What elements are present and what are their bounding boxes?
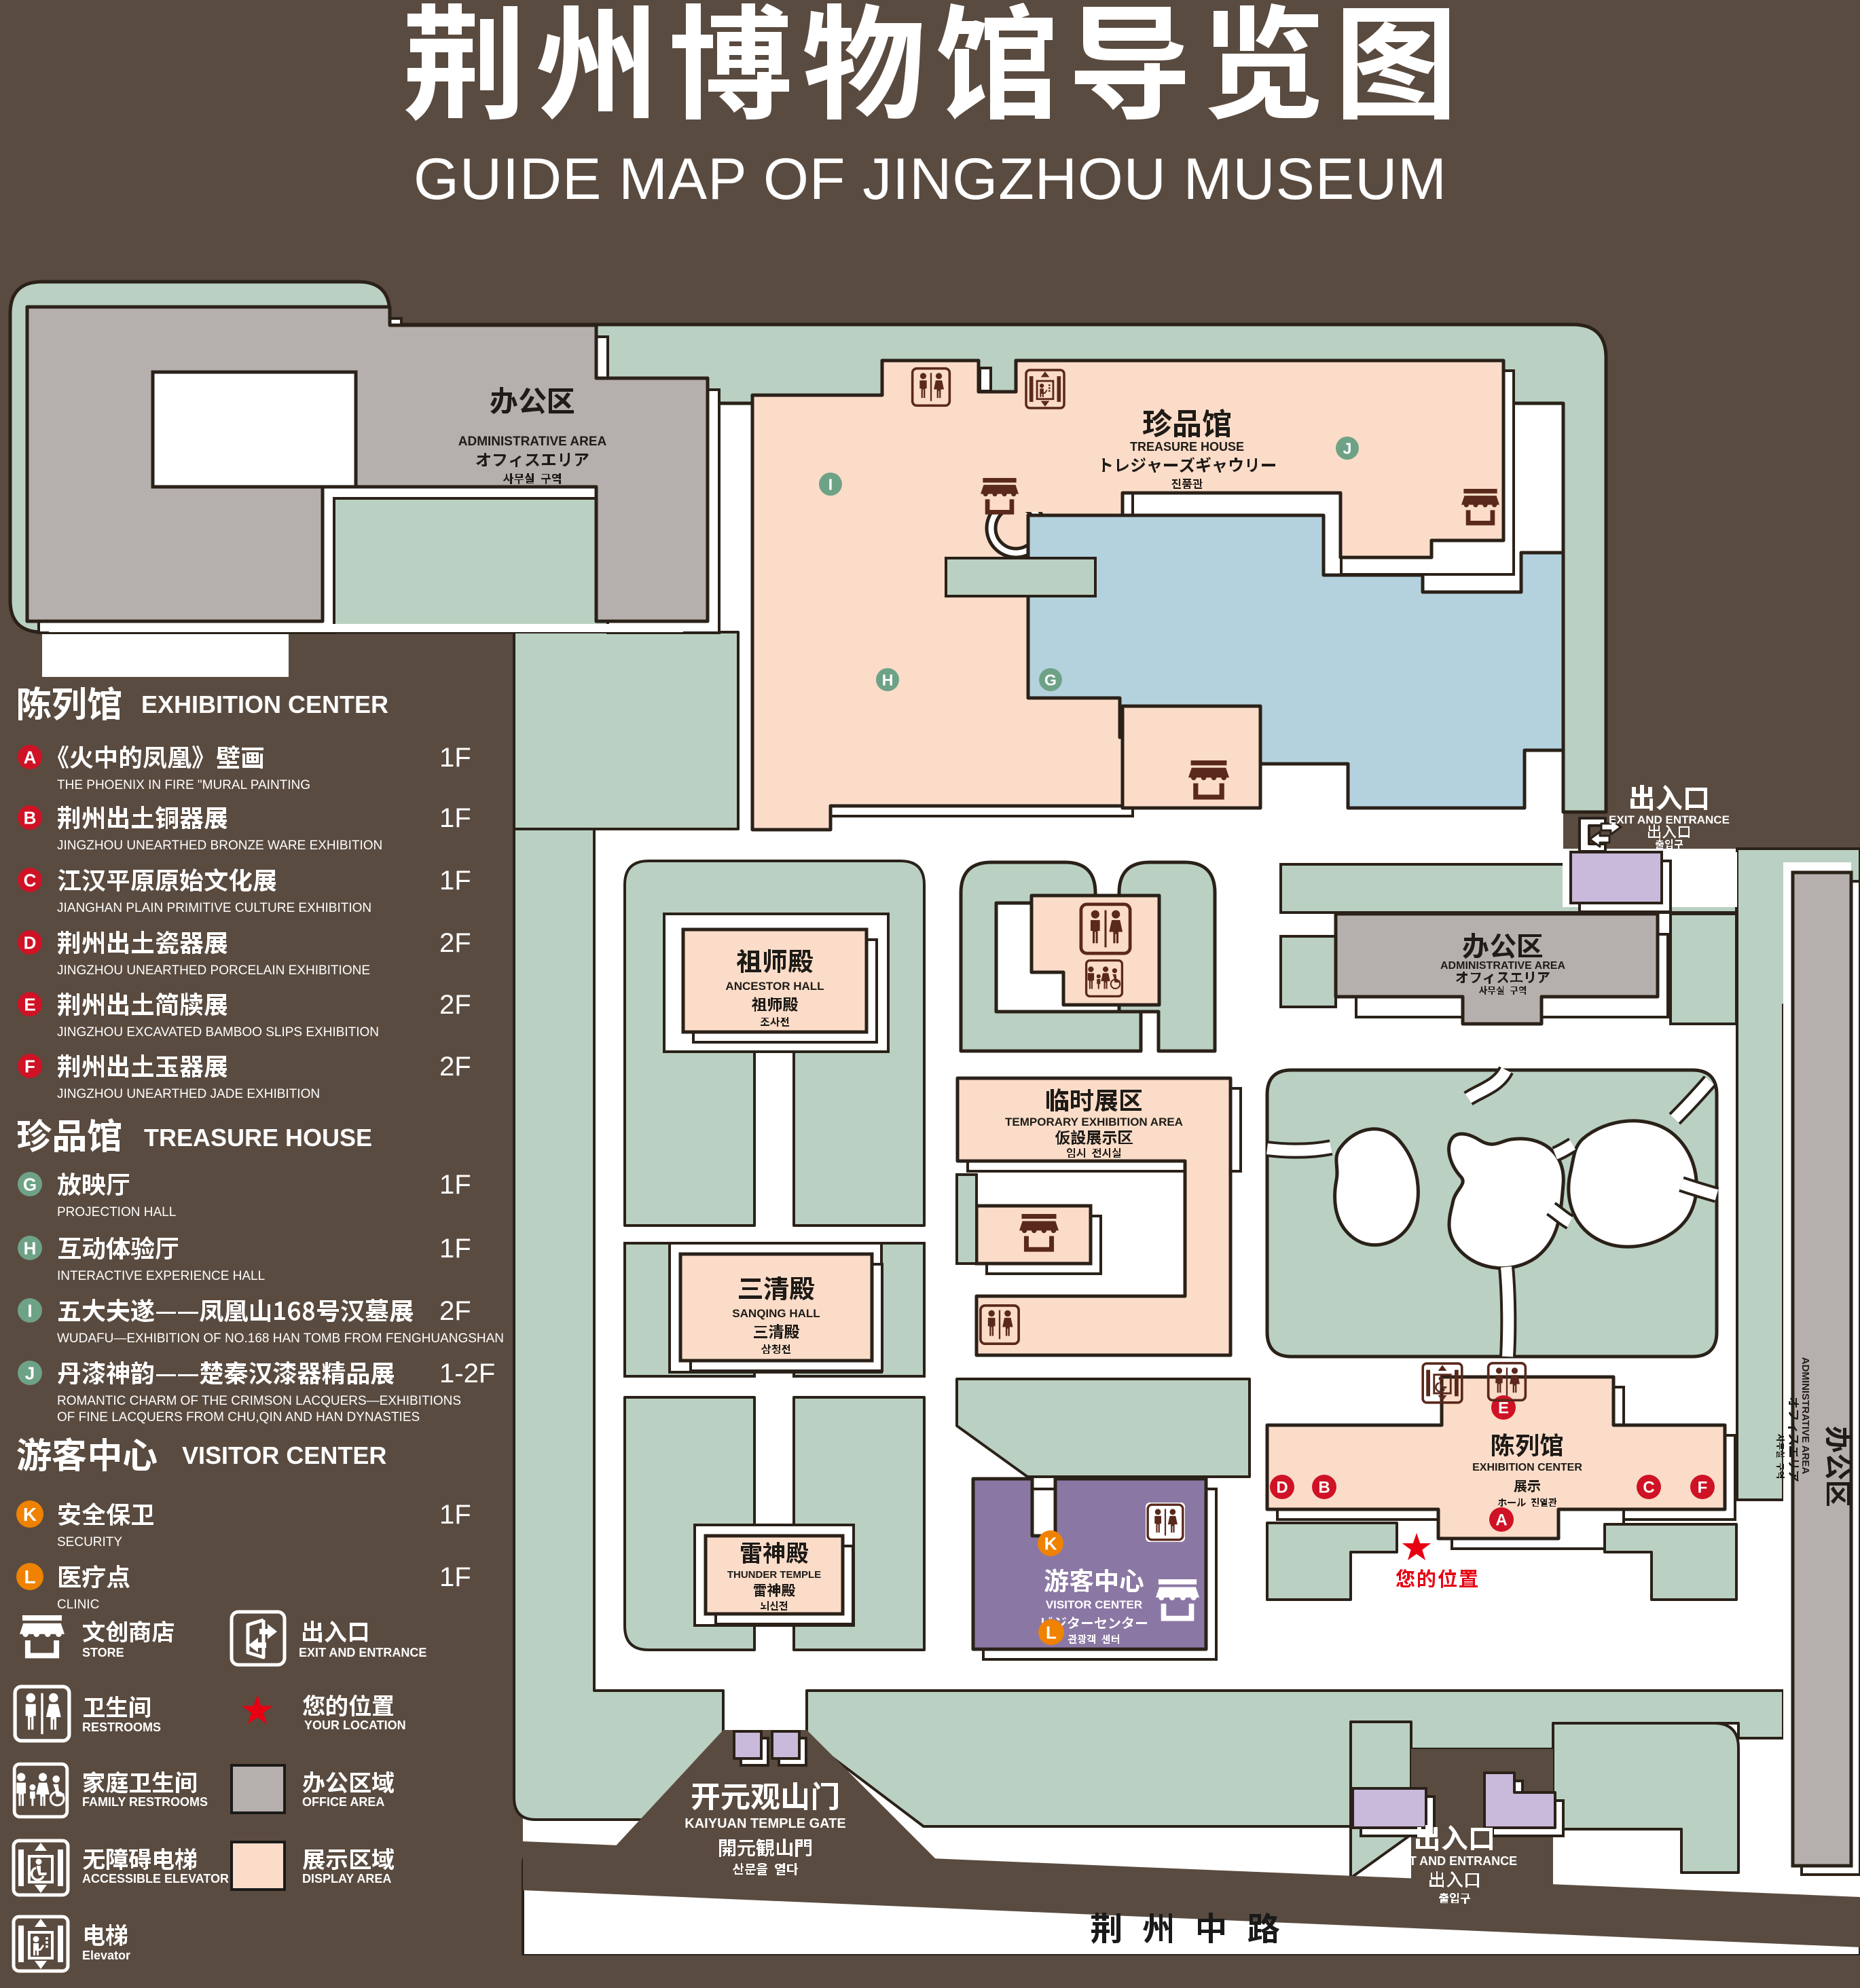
svg-text:STORE: STORE bbox=[82, 1646, 124, 1659]
svg-text:THUNDER TEMPLE: THUNDER TEMPLE bbox=[727, 1569, 821, 1581]
svg-text:JINGZHOU UNEARTHED BRONZE WARE: JINGZHOU UNEARTHED BRONZE WARE EXHIBITIO… bbox=[57, 839, 382, 853]
svg-text:PROJECTION HALL: PROJECTION HALL bbox=[57, 1205, 176, 1219]
svg-text:C: C bbox=[1643, 1479, 1654, 1497]
svg-text:E: E bbox=[24, 994, 35, 1014]
svg-text:1F: 1F bbox=[439, 1500, 471, 1530]
svg-text:SECURITY: SECURITY bbox=[57, 1535, 122, 1549]
svg-text:1F: 1F bbox=[439, 803, 471, 833]
svg-text:A: A bbox=[1495, 1511, 1507, 1530]
svg-text:JINGZHOU EXCAVATED BAMBOO SLIP: JINGZHOU EXCAVATED BAMBOO SLIPS EXHIBITI… bbox=[57, 1025, 379, 1039]
svg-text:DISPLAY AREA: DISPLAY AREA bbox=[302, 1872, 391, 1885]
svg-text:K: K bbox=[1044, 1533, 1057, 1553]
svg-text:KAIYUAN TEMPLE GATE: KAIYUAN TEMPLE GATE bbox=[685, 1816, 845, 1831]
svg-text:ADMINISTRATIVE AREA: ADMINISTRATIVE AREA bbox=[1800, 1357, 1811, 1475]
svg-text:1F: 1F bbox=[439, 743, 471, 773]
svg-text:WUDAFU—EXHIBITION OF NO.168 HA: WUDAFU—EXHIBITION OF NO.168 HAN TOMB FRO… bbox=[57, 1331, 504, 1346]
svg-text:EXIT AND ENTRANCE: EXIT AND ENTRANCE bbox=[1389, 1854, 1517, 1868]
svg-text:C: C bbox=[24, 870, 37, 890]
svg-text:1-2F: 1-2F bbox=[439, 1359, 495, 1388]
svg-text:B: B bbox=[24, 807, 37, 828]
svg-text:L: L bbox=[24, 1566, 35, 1587]
svg-text:Elevator: Elevator bbox=[82, 1949, 130, 1962]
svg-text:VISITOR CENTER: VISITOR CENTER bbox=[182, 1441, 386, 1469]
svg-text:D: D bbox=[24, 932, 37, 953]
svg-text:TREASURE HOUSE: TREASURE HOUSE bbox=[144, 1124, 372, 1152]
svg-text:L: L bbox=[1046, 1622, 1057, 1642]
svg-text:J: J bbox=[25, 1363, 35, 1383]
svg-text:JIANGHAN PLAIN PRIMITIVE CULTU: JIANGHAN PLAIN PRIMITIVE CULTURE EXHIBIT… bbox=[57, 901, 371, 915]
svg-text:EXIT AND ENTRANCE: EXIT AND ENTRANCE bbox=[1609, 813, 1730, 826]
svg-text:D: D bbox=[1276, 1479, 1288, 1497]
svg-text:ANCESTOR HALL: ANCESTOR HALL bbox=[725, 980, 824, 993]
svg-text:EXHIBITION CENTER: EXHIBITION CENTER bbox=[141, 691, 388, 718]
svg-text:JINGZHOU UNEARTHED JADE EXHIBI: JINGZHOU UNEARTHED JADE EXHIBITION bbox=[57, 1087, 320, 1101]
svg-text:VISITOR CENTER: VISITOR CENTER bbox=[1046, 1598, 1142, 1611]
svg-text:ADMINISTRATIVE AREA: ADMINISTRATIVE AREA bbox=[458, 435, 607, 449]
svg-text:INTERACTIVE EXPERIENCE HALL: INTERACTIVE EXPERIENCE HALL bbox=[57, 1269, 265, 1283]
svg-text:I: I bbox=[828, 475, 833, 493]
svg-text:ADMINISTRATIVE AREA: ADMINISTRATIVE AREA bbox=[1440, 960, 1565, 972]
svg-text:TREASURE HOUSE: TREASURE HOUSE bbox=[1130, 440, 1244, 454]
svg-text:G: G bbox=[23, 1174, 37, 1194]
svg-text:RESTROOMS: RESTROOMS bbox=[82, 1720, 161, 1734]
svg-text:YOUR LOCATION: YOUR LOCATION bbox=[304, 1718, 406, 1732]
svg-text:I: I bbox=[27, 1300, 32, 1321]
svg-text:2F: 2F bbox=[439, 928, 471, 958]
svg-text:EXHIBITION CENTER: EXHIBITION CENTER bbox=[1472, 1462, 1582, 1473]
svg-text:SANQING HALL: SANQING HALL bbox=[732, 1307, 820, 1320]
svg-text:OFFICE AREA: OFFICE AREA bbox=[302, 1795, 384, 1809]
svg-text:2F: 2F bbox=[439, 990, 471, 1020]
svg-text:1F: 1F bbox=[439, 866, 471, 896]
svg-text:J: J bbox=[1343, 439, 1352, 457]
svg-text:2F: 2F bbox=[439, 1052, 471, 1082]
svg-text:TEMPORARY EXHIBITION AREA: TEMPORARY EXHIBITION AREA bbox=[1005, 1116, 1183, 1128]
svg-text:H: H bbox=[882, 671, 894, 688]
svg-text:H: H bbox=[24, 1238, 37, 1258]
svg-text:ACCESSIBLE ELEVATOR: ACCESSIBLE ELEVATOR bbox=[82, 1872, 229, 1885]
svg-text:F: F bbox=[24, 1056, 35, 1076]
svg-text:THE PHOENIX IN FIRE "MURAL PAI: THE PHOENIX IN FIRE "MURAL PAINTING bbox=[57, 778, 310, 792]
svg-text:ROMANTIC CHARM OF THE CRIMSON: ROMANTIC CHARM OF THE CRIMSON LACQUERS—E… bbox=[57, 1394, 461, 1408]
svg-text:1F: 1F bbox=[439, 1234, 471, 1264]
svg-text:B: B bbox=[1318, 1479, 1330, 1497]
svg-text:G: G bbox=[1044, 671, 1057, 688]
svg-text:1F: 1F bbox=[439, 1170, 471, 1200]
svg-text:K: K bbox=[23, 1504, 37, 1525]
svg-text:FAMILY RESTROOMS: FAMILY RESTROOMS bbox=[82, 1795, 208, 1809]
svg-text:OF FINE LACQUERS FROM CHU,QIN: OF FINE LACQUERS FROM CHU,QIN AND HAN DY… bbox=[57, 1410, 420, 1424]
svg-text:GUIDE MAP OF JINGZHOU MUSEUM: GUIDE MAP OF JINGZHOU MUSEUM bbox=[414, 147, 1447, 212]
svg-text:2F: 2F bbox=[439, 1296, 471, 1326]
svg-text:1F: 1F bbox=[439, 1562, 471, 1592]
svg-text:EXIT AND ENTRANCE: EXIT AND ENTRANCE bbox=[299, 1646, 426, 1659]
svg-text:E: E bbox=[1498, 1399, 1509, 1418]
svg-text:JINGZHOU UNEARTHED PORCELAIN E: JINGZHOU UNEARTHED PORCELAIN EXHIBITIONE bbox=[57, 963, 370, 978]
svg-text:F: F bbox=[1698, 1479, 1708, 1497]
svg-text:A: A bbox=[24, 747, 37, 767]
svg-text:CLINIC: CLINIC bbox=[57, 1598, 99, 1612]
